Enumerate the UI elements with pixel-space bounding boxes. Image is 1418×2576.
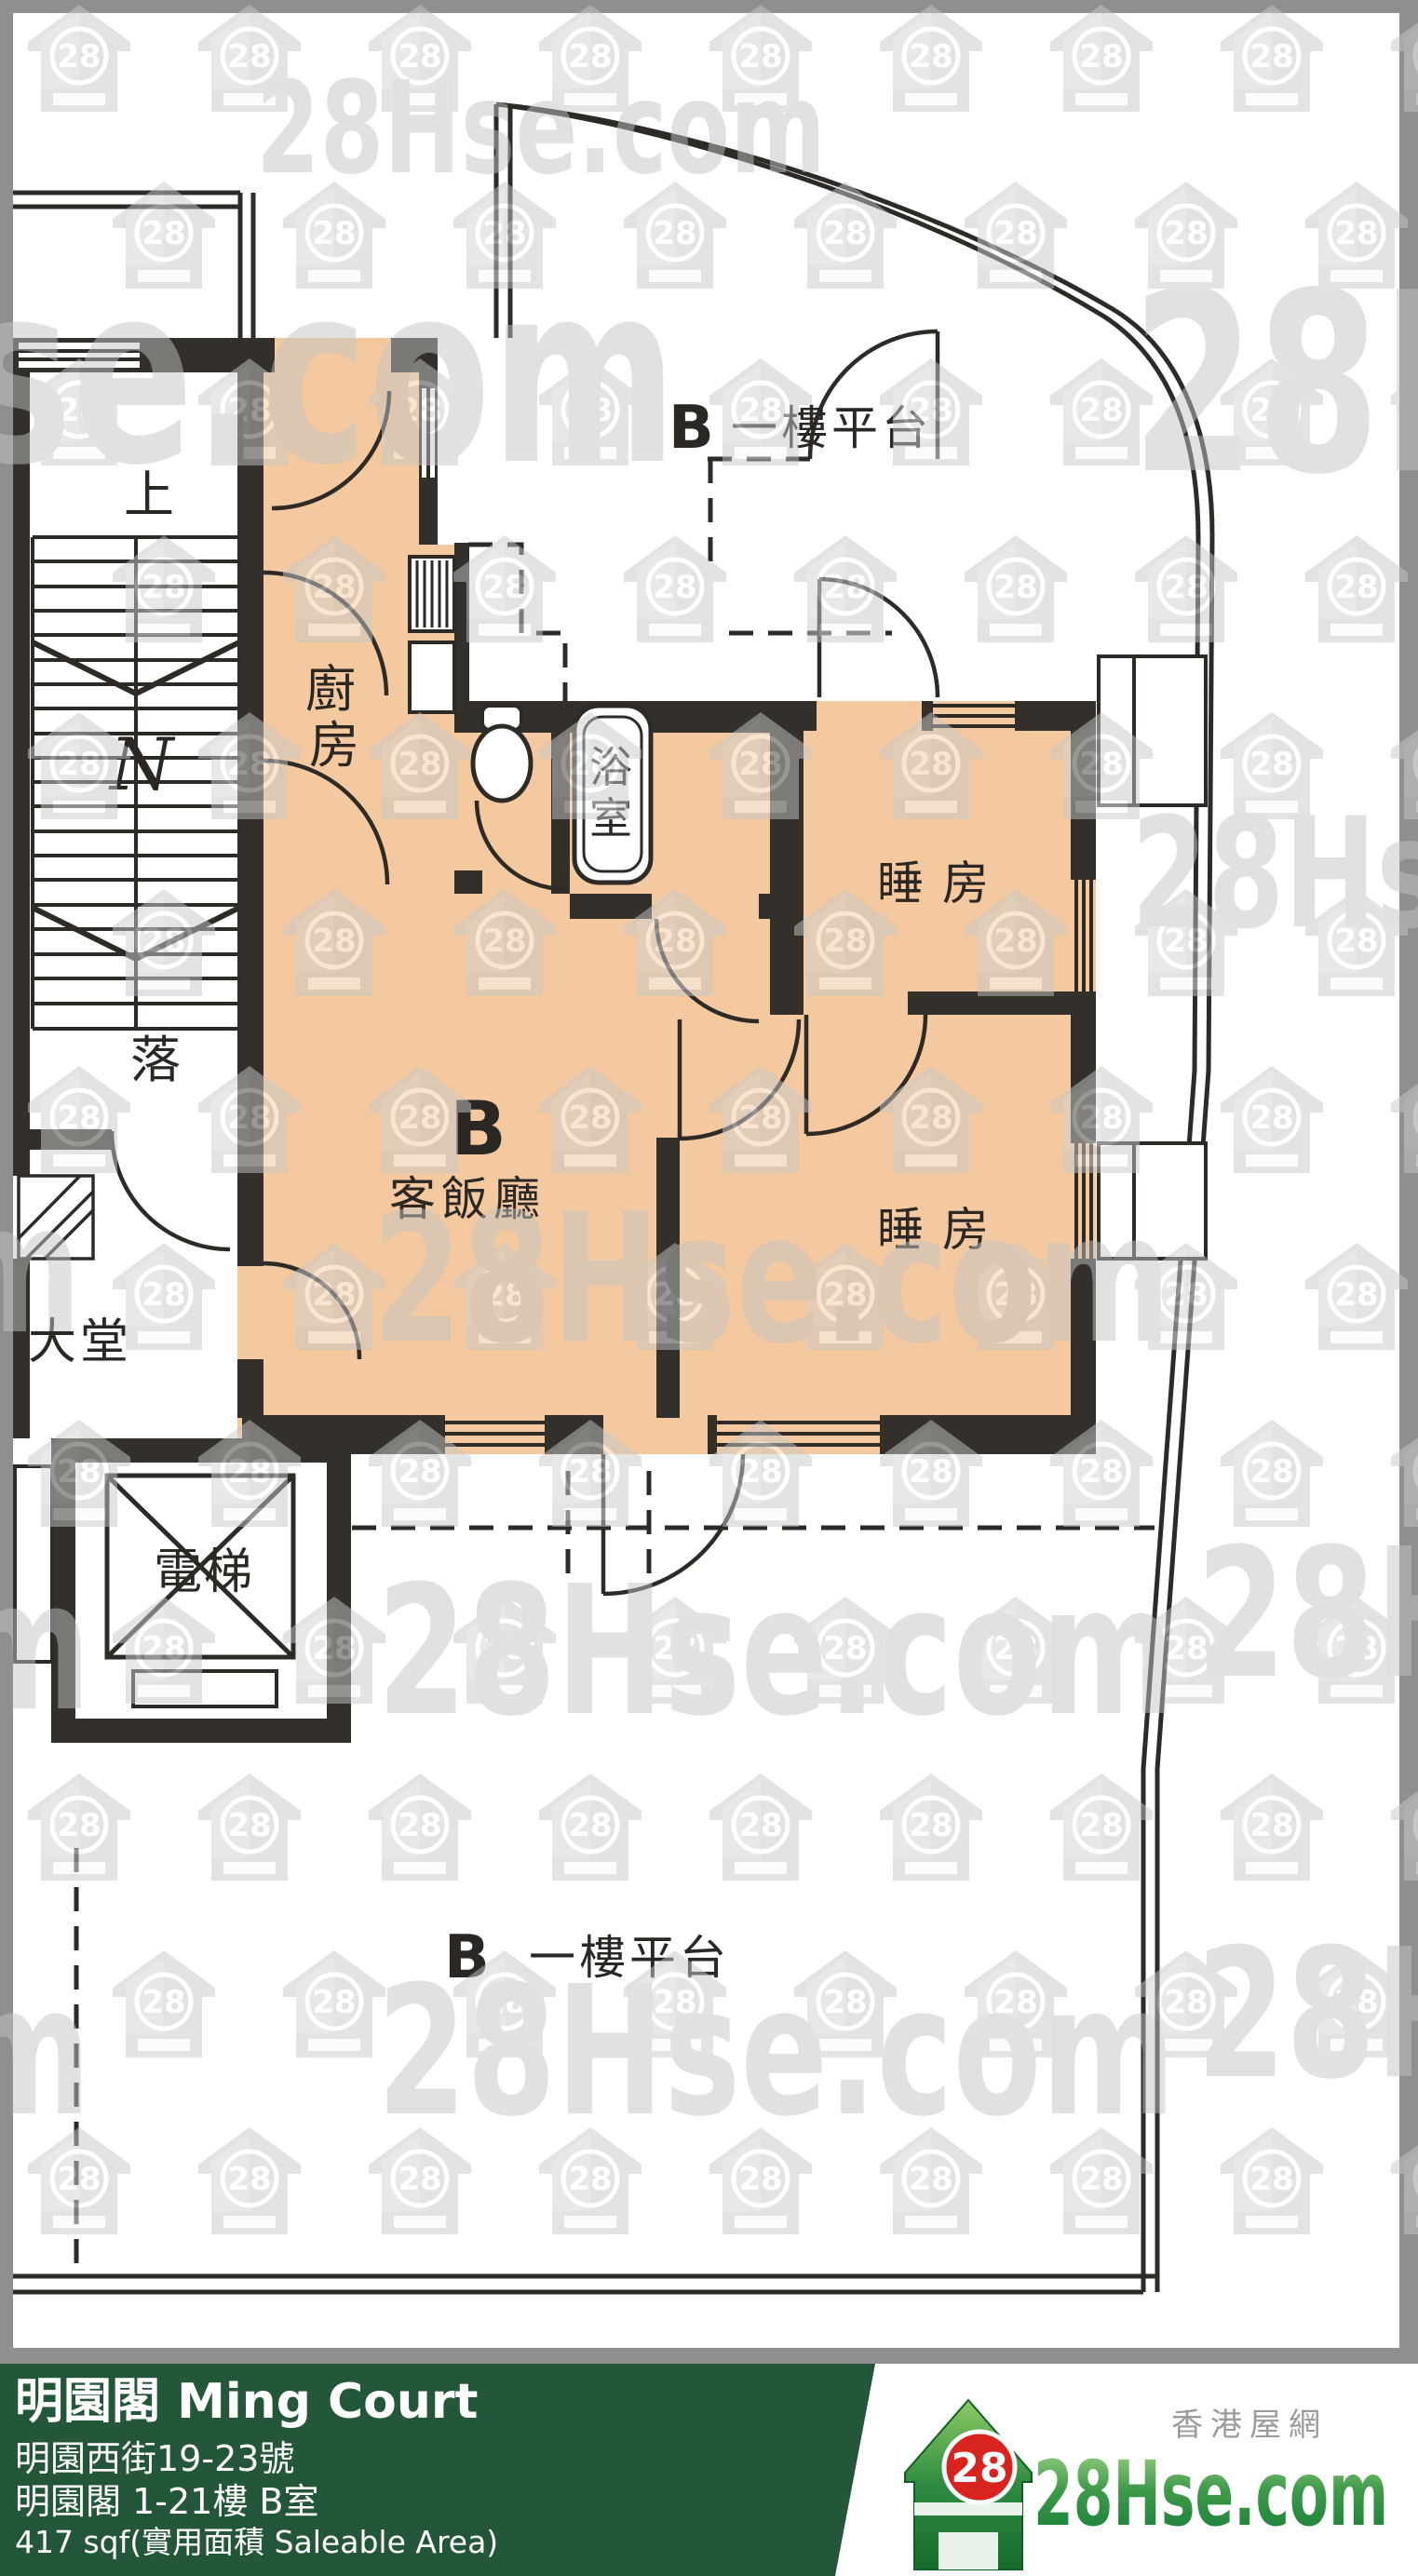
watermark-text: 28Hse.com [377, 1949, 1176, 2156]
watermark-house-icon-number: 28 [909, 1807, 952, 1844]
watermark-house-icon-number: 28 [57, 1099, 101, 1137]
watermark-house-icon-number: 28 [398, 1807, 441, 1844]
watermark-house-icon-number: 28 [909, 38, 952, 75]
watermark-text: 28Hse.com [0, 1167, 82, 1374]
watermark-house-icon-number: 28 [312, 923, 356, 960]
watermark-house-icon-number: 28 [227, 1099, 271, 1137]
watermark-house-icon-number: 28 [142, 1276, 185, 1314]
watermark-house-icon-number: 28 [227, 2161, 271, 2198]
watermark-text: 28Hse.com [1196, 1511, 1418, 1719]
label-stairs-down: 落 [130, 1031, 181, 1089]
watermark-house-icon-number: 28 [312, 1630, 356, 1667]
watermark-house-icon-number: 28 [738, 1453, 782, 1490]
kitchen-stove-icon [410, 642, 454, 712]
watermark-house-icon-number: 28 [1249, 1807, 1293, 1844]
watermark-house-icon-number: 28 [738, 1099, 782, 1137]
watermark-house-icon-number: 28 [738, 2161, 782, 2198]
watermark-house-icon-number: 28 [653, 569, 696, 606]
watermark-house-icon-number: 28 [993, 923, 1037, 960]
watermark-house-icon-number: 28 [738, 1807, 782, 1844]
logo-badge-number: 28 [951, 2445, 1007, 2492]
watermark-house-icon-number: 28 [227, 1807, 271, 1844]
watermark-house-icon-number: 28 [909, 746, 952, 783]
label-kitchen-2: 房 [309, 716, 359, 775]
label-kitchen-1: 廚 [305, 660, 356, 719]
watermark-house-icon-number: 28 [909, 1099, 952, 1137]
watermark-house-icon-number: 28 [312, 1984, 356, 2021]
watermark-house-icon-number: 28 [823, 923, 867, 960]
watermark-house-icon-number: 28 [57, 1807, 101, 1844]
watermark-house-icon-number: 28 [1334, 569, 1378, 606]
watermark-house-icon-number: 28 [398, 1099, 441, 1137]
watermark-house-icon-number: 28 [653, 923, 696, 960]
watermark-text: 28Hse.com [377, 1548, 1176, 1756]
footer-title: 明園閣 Ming Court [15, 2374, 478, 2430]
watermark-house-icon-number: 28 [57, 38, 101, 75]
watermark-house-icon-number: 28 [738, 746, 782, 783]
footer-unit: 明園閣 1-21樓 B室 [15, 2481, 318, 2522]
watermark-house-icon-number: 28 [1249, 2161, 1293, 2198]
watermark-house-icon-number: 28 [909, 2161, 952, 2198]
watermark-house-icon-number: 28 [312, 569, 356, 606]
watermark-house-icon-number: 28 [1079, 1453, 1123, 1490]
watermark-house-icon-number: 28 [909, 1453, 952, 1490]
footer-area: 417 sqf(實用面積 Saleable Area) [15, 2524, 498, 2560]
watermark-house-icon-number: 28 [993, 569, 1037, 606]
footer-address: 明園西街19-23號 [15, 2438, 294, 2479]
watermark-house-icon-number: 28 [482, 569, 526, 606]
watermark-house-icon-number: 28 [1249, 746, 1293, 783]
watermark-text: 28Hse.com [256, 55, 826, 204]
watermark-house-icon-number: 28 [1079, 392, 1123, 429]
toilet-icon [473, 726, 531, 801]
watermark-house-icon-number: 28 [568, 2161, 612, 2198]
watermark-house-icon-number: 28 [482, 923, 526, 960]
watermark-house-icon-number: 28 [142, 1630, 185, 1667]
watermark-house-icon-number: 28 [1079, 38, 1123, 75]
watermark-house-icon-number: 28 [398, 746, 441, 783]
watermark-text: 28Hse.com [0, 1544, 91, 1751]
watermark-house-icon-number: 28 [1249, 38, 1293, 75]
watermark-text: 28Hse.com [372, 1176, 1171, 1383]
watermark-house-icon-number: 28 [823, 569, 867, 606]
watermark-house-icon-number: 28 [57, 2161, 101, 2198]
watermark-house-icon-number: 28 [142, 569, 185, 606]
watermark-text: 28Hse.com [0, 230, 677, 519]
footer-gray-strip [0, 2348, 1418, 2364]
watermark-house-icon-number: 28 [909, 392, 952, 429]
watermark-house-icon-number: 28 [398, 1453, 441, 1490]
watermark-house-icon-number: 28 [568, 746, 612, 783]
watermark-house-icon-number: 28 [568, 1099, 612, 1137]
logo-tagline: 香港屋網 [1171, 2407, 1328, 2444]
watermark-house-icon-number: 28 [227, 1453, 271, 1490]
watermark-house-icon-number: 28 [1249, 1453, 1293, 1490]
logo-site-name: 28Hse.com [1033, 2443, 1388, 2547]
watermark-house-icon-number: 28 [568, 1807, 612, 1844]
watermark-house-icon-number: 28 [738, 392, 782, 429]
watermark-text: 28Hse.com [0, 1949, 91, 2156]
watermark-house-icon-number: 28 [227, 746, 271, 783]
watermark-text: 28Hse.com [1196, 1911, 1418, 2119]
label-north: N [108, 723, 176, 807]
watermark-house-icon-number: 28 [568, 1453, 612, 1490]
footer: 明園閣 Ming Court 明園西街19-23號 明園閣 1-21樓 B室 4… [0, 2348, 1418, 2576]
label-bedroom-1: 睡房 [877, 856, 1007, 910]
watermark-house-icon-number: 28 [57, 746, 101, 783]
watermark-text: 28Hse.com [1131, 784, 1418, 963]
watermark-text: 28Hse.com [1131, 239, 1418, 529]
watermark-house-icon-number: 28 [398, 2161, 441, 2198]
watermark-house-icon-number: 28 [1079, 1099, 1123, 1137]
label-lift: 電梯 [154, 1544, 254, 1600]
watermark-house-icon-number: 28 [823, 215, 867, 252]
watermark-house-icon-number: 28 [1249, 1099, 1293, 1137]
floorplan-page: 上 落 N 大堂 電梯 廚 房 浴 室 睡房 睡房 B 客飯廳 B 一樓平台 B… [0, 0, 1418, 2576]
watermark-house-icon-number: 28 [142, 1984, 185, 2021]
watermark-house-icon-number: 28 [1334, 1276, 1378, 1314]
watermark-house-icon-number: 28 [312, 1276, 356, 1314]
watermark-house-icon-number: 28 [142, 923, 185, 960]
watermark-house-icon-number: 28 [1079, 746, 1123, 783]
watermark-house-icon-number: 28 [1079, 2161, 1123, 2198]
watermark-house-icon-number: 28 [1079, 1807, 1123, 1844]
watermark-house-icon-number: 28 [1164, 569, 1208, 606]
watermark-house-icon-number: 28 [993, 215, 1037, 252]
watermark-house-icon-number: 28 [57, 1453, 101, 1490]
